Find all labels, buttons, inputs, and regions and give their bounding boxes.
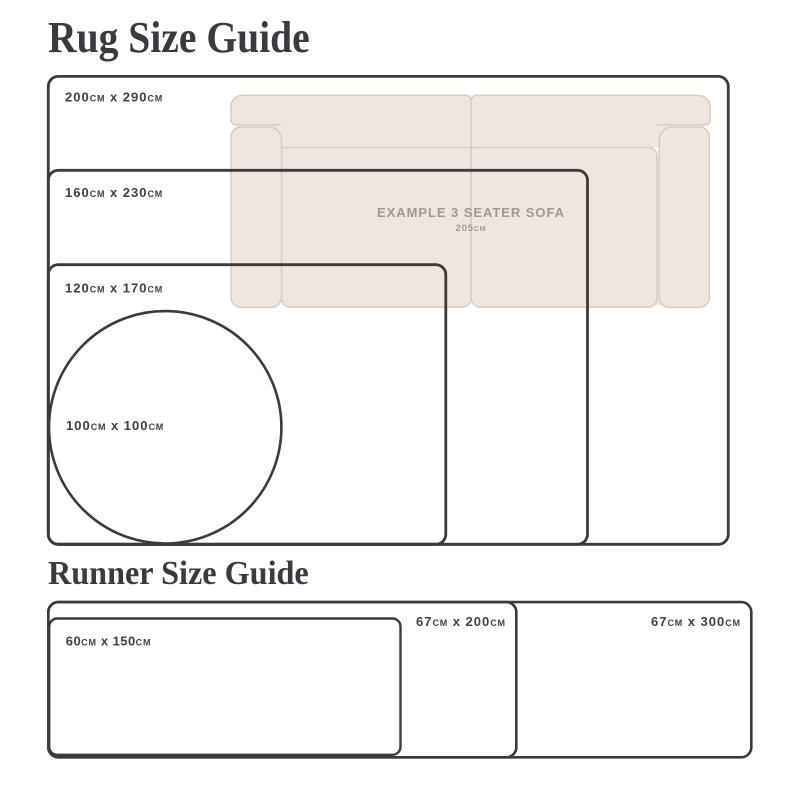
svg-text:67CM x 300CM: 67CM x 300CM [651,614,741,629]
svg-text:Rug Size Guide: Rug Size Guide [48,14,310,62]
svg-text:67CM x 200CM: 67CM x 200CM [416,614,506,629]
svg-text:Runner Size Guide: Runner Size Guide [48,554,309,592]
svg-text:200CM x 290CM: 200CM x 290CM [65,90,163,105]
svg-text:100CM x 100CM: 100CM x 100CM [66,418,164,433]
svg-text:120CM x 170CM: 120CM x 170CM [65,281,163,296]
svg-text:EXAMPLE 3 SEATER SOFA: EXAMPLE 3 SEATER SOFA [377,205,565,220]
svg-text:160CM x 230CM: 160CM x 230CM [65,185,163,200]
svg-text:60CM x 150CM: 60CM x 150CM [66,634,151,649]
